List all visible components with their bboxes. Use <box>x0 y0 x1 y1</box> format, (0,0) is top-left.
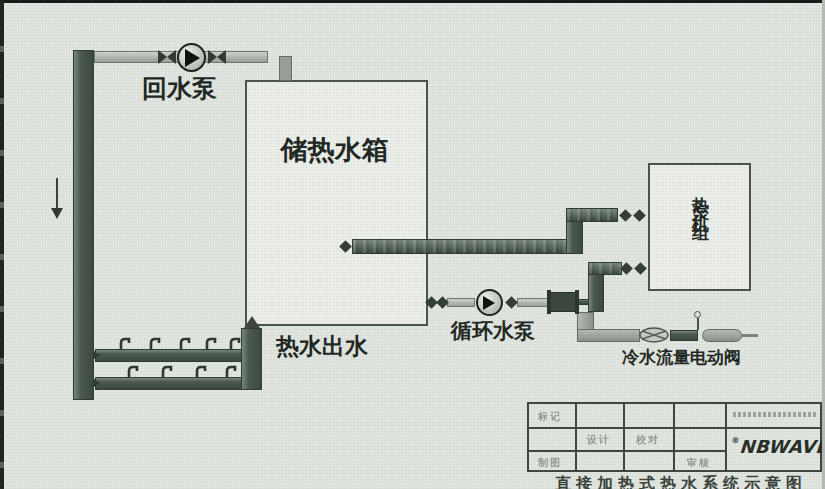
circulation-pipe <box>517 298 548 307</box>
title-block-field-mark: 标记 <box>538 410 562 424</box>
nbwave-logo: ®NBWAVE <box>730 436 821 457</box>
valve-actuator-icon <box>694 311 701 318</box>
storage-tank-box <box>245 80 428 326</box>
valve-icon <box>634 262 647 275</box>
return-pump-label: 回水泵 <box>142 72 217 105</box>
page-border-left <box>0 0 4 489</box>
valve-icon <box>505 296 518 309</box>
valve-actuator-stem <box>697 318 699 330</box>
page-border-top <box>0 0 825 3</box>
title-block-divider <box>673 404 675 470</box>
circulation-pipe <box>447 298 475 307</box>
tap-icon <box>126 364 141 379</box>
cold-water-pipe <box>577 329 640 342</box>
pipe-stub <box>742 334 758 337</box>
valve-icon <box>633 209 646 222</box>
cold-water-pipe-segment <box>670 330 698 341</box>
tap-icon <box>148 336 163 351</box>
main-riser-pipe <box>73 50 94 400</box>
tap-icon <box>224 364 239 379</box>
circulation-pump-label: 循环水泵 <box>451 317 535 345</box>
tap-icon <box>118 336 133 351</box>
manifold-riser <box>241 328 262 390</box>
tap-icon <box>160 364 175 379</box>
title-block-field-design: 设计 <box>587 433 611 447</box>
tank-top-connector <box>279 56 292 81</box>
title-block-divider <box>575 404 577 470</box>
branch-arrow-icon <box>93 379 100 387</box>
storage-tank-label: 储热水箱 <box>245 132 424 168</box>
heat-pump-unit-label: 热泵机组 <box>690 183 713 219</box>
valve-body <box>702 329 742 342</box>
company-name-text <box>733 412 817 417</box>
flow-up-arrow-icon <box>244 316 260 328</box>
title-block-divider <box>529 427 820 429</box>
title-block-divider <box>529 450 727 452</box>
title-block-field-check: 校对 <box>636 433 660 447</box>
tap-icon <box>228 336 243 351</box>
flow-arrow-head-icon <box>51 208 63 219</box>
schematic-drawing-page: 回水泵 储热水箱 热水出水 循环水泵 热泵机组 冷水流量电动阀 标记 设计 校对… <box>0 0 825 489</box>
cold-water-valve-label: 冷水流量电动阀 <box>622 346 741 369</box>
supply-pipe-to-heatpump <box>566 208 618 222</box>
tap-icon <box>194 364 209 379</box>
tap-icon <box>178 336 193 351</box>
valve-icon <box>620 262 633 275</box>
supply-pipe-horizontal <box>352 239 583 254</box>
circulation-pump-icon <box>476 289 503 316</box>
valve-icon <box>158 50 176 64</box>
heatpump-return-horizontal <box>588 262 622 275</box>
valve-icon <box>208 50 226 64</box>
title-block-field-draft: 制图 <box>538 456 562 470</box>
branch-arrow-icon <box>93 351 100 359</box>
title-block-field-review: 审核 <box>687 456 711 470</box>
nbwave-logo-text: NBWAVE <box>739 436 825 457</box>
title-block: 标记 设计 校对 制图 审核 ®NBWAVE <box>527 402 822 472</box>
hot-water-outlet-label: 热水出水 <box>276 331 368 362</box>
return-pump-icon <box>177 43 206 72</box>
title-block-divider <box>725 404 727 470</box>
flow-arrow-icon <box>56 178 58 210</box>
title-block-divider <box>623 404 625 470</box>
flange-valve-icon <box>548 292 578 312</box>
electric-valve-icon <box>638 327 670 343</box>
valve-icon <box>619 209 632 222</box>
drawing-title: 直接加热式热水系统示意图 <box>540 474 822 489</box>
tap-icon <box>204 336 219 351</box>
